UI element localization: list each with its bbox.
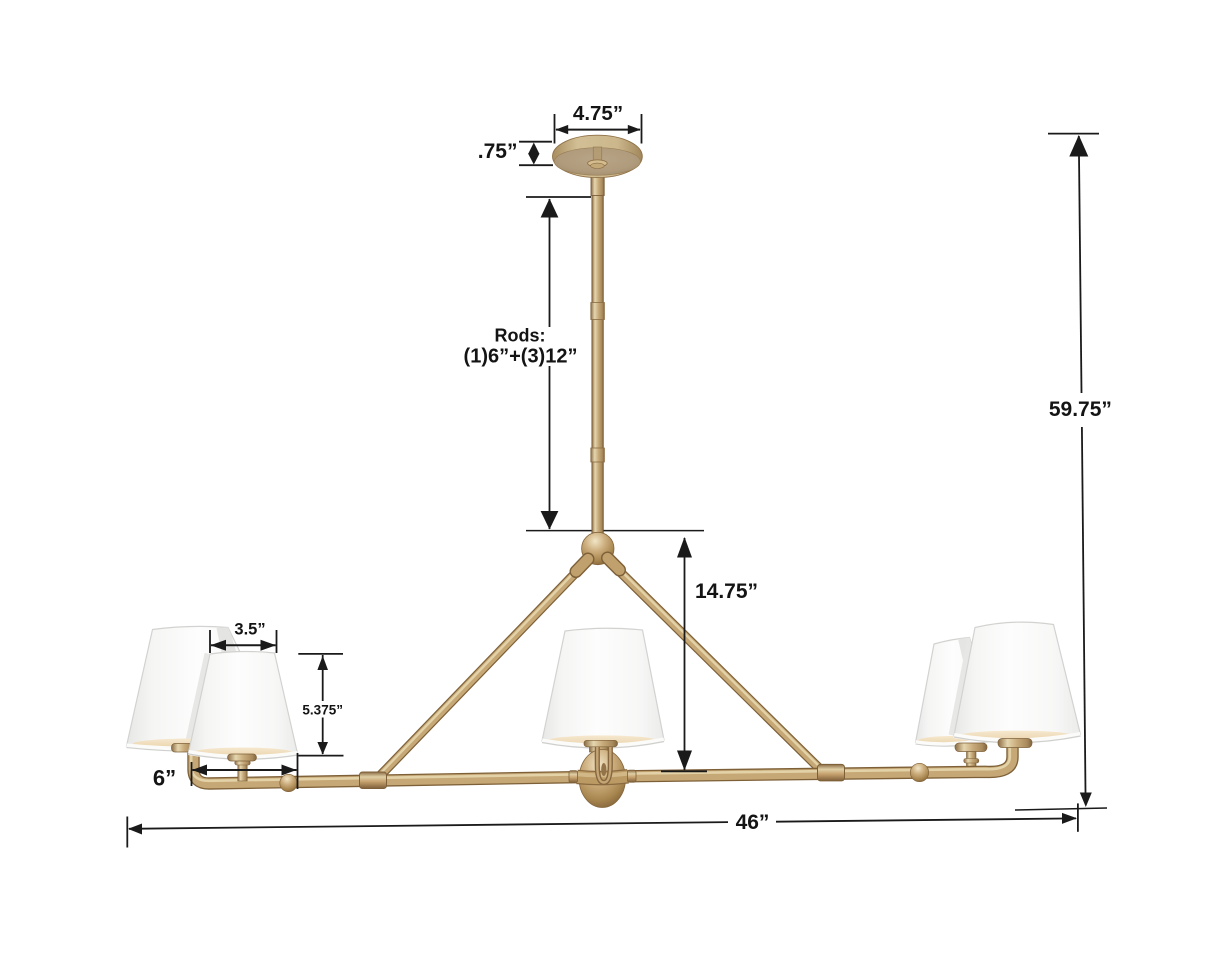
svg-text:4.75”: 4.75” — [573, 102, 623, 125]
svg-text:5.375”: 5.375” — [302, 703, 343, 718]
svg-text:.75”: .75” — [478, 140, 518, 163]
svg-text:46”: 46” — [736, 811, 770, 834]
svg-text:Rods:: Rods: — [495, 326, 546, 346]
svg-text:3.5”: 3.5” — [234, 620, 265, 638]
svg-text:59.75”: 59.75” — [1049, 398, 1112, 421]
svg-text:(1)6”+(3)12”: (1)6”+(3)12” — [464, 346, 578, 368]
svg-text:14.75”: 14.75” — [695, 580, 758, 603]
svg-text:6”: 6” — [153, 766, 176, 791]
